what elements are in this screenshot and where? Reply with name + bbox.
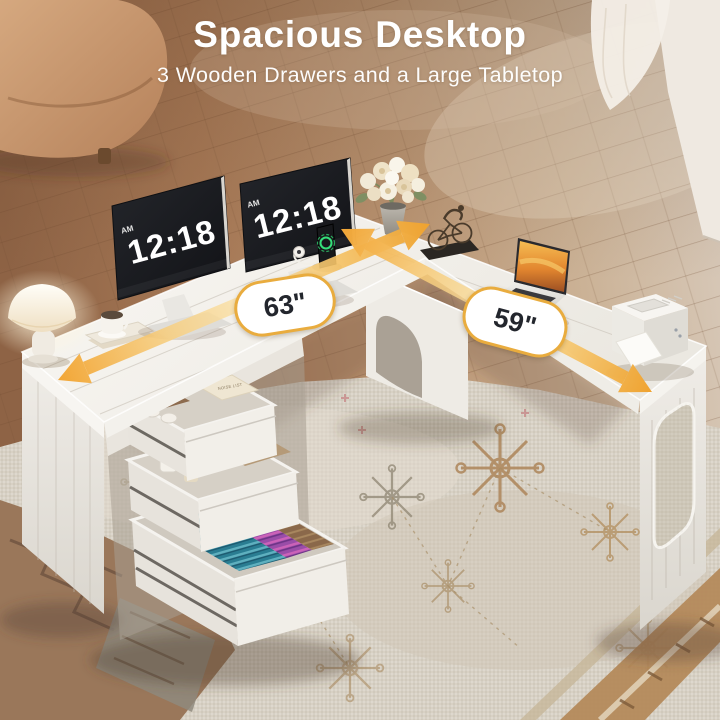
sofa-leg (98, 148, 111, 164)
coffee-cup (98, 311, 127, 339)
scene: NOISE LIST (0, 0, 720, 720)
product-subtitle: 3 Wooden Drawers and a Large Tabletop (0, 63, 720, 88)
product-marketing-image: NOISE LIST (0, 0, 720, 720)
headline: Spacious Desktop 3 Wooden Drawers and a … (0, 14, 720, 88)
dimension-label-59: 59" (490, 301, 539, 342)
product-title: Spacious Desktop (0, 14, 720, 56)
dimension-label-63: 63" (261, 286, 308, 323)
cup-in-drawer (161, 413, 177, 423)
